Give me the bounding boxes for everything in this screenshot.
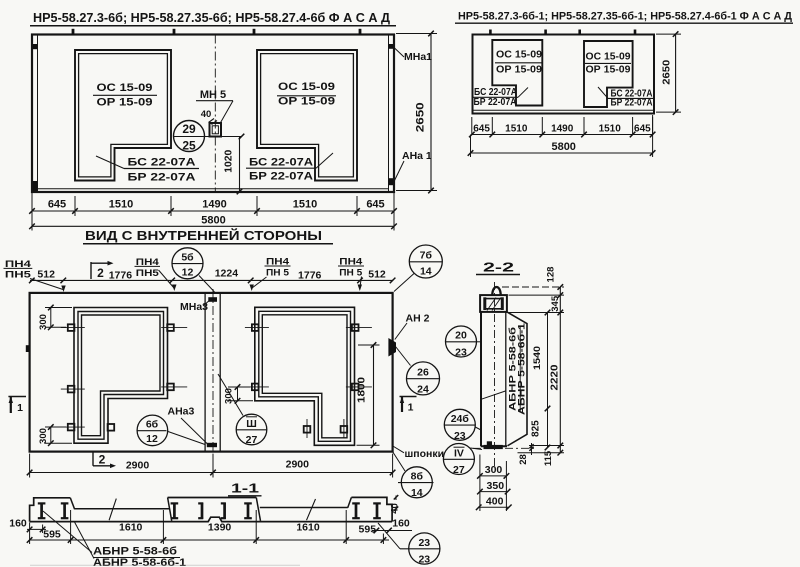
svg-text:400: 400 — [486, 496, 504, 508]
svg-text:1-1: 1-1 — [231, 482, 259, 496]
svg-text:28: 28 — [518, 454, 529, 465]
svg-text:ОР 15-09: ОР 15-09 — [496, 65, 542, 76]
svg-text:IV: IV — [454, 447, 464, 459]
svg-text:МН 5: МН 5 — [200, 89, 226, 101]
svg-text:1510: 1510 — [599, 124, 622, 135]
svg-text:2: 2 — [99, 453, 106, 467]
svg-text:2900: 2900 — [286, 459, 310, 471]
svg-text:2650: 2650 — [661, 60, 673, 85]
svg-text:1510: 1510 — [293, 199, 317, 211]
svg-text:512: 512 — [37, 269, 55, 281]
svg-text:1390: 1390 — [208, 522, 232, 534]
svg-text:300: 300 — [38, 314, 49, 330]
svg-text:14: 14 — [411, 487, 423, 499]
svg-text:2: 2 — [97, 266, 104, 280]
svg-text:БС 22-07А: БС 22-07А — [128, 157, 196, 169]
svg-text:5б: 5б — [181, 252, 194, 264]
svg-text:ОС 15-09: ОС 15-09 — [278, 81, 335, 93]
svg-text:БР 22-07А: БР 22-07А — [128, 172, 196, 184]
svg-text:АБНР 5-58-6б: АБНР 5-58-6б — [93, 546, 177, 558]
svg-text:1776: 1776 — [109, 270, 133, 282]
svg-text:23: 23 — [454, 430, 466, 442]
svg-text:300: 300 — [38, 428, 49, 444]
svg-text:27: 27 — [453, 464, 465, 476]
svg-text:128: 128 — [546, 267, 557, 283]
svg-text:1020: 1020 — [223, 150, 235, 173]
svg-text:ПН 5: ПН 5 — [339, 267, 363, 278]
svg-text:6б: 6б — [146, 419, 159, 431]
svg-text:1540: 1540 — [532, 346, 542, 370]
svg-text:595: 595 — [43, 529, 61, 541]
svg-text:645: 645 — [473, 124, 490, 135]
svg-text:ОР 15-09: ОР 15-09 — [278, 96, 335, 108]
svg-text:2220: 2220 — [549, 364, 561, 390]
svg-text:29: 29 — [182, 122, 196, 136]
svg-text:НР5-58.27.3-6б; НР5-58.27.35-6: НР5-58.27.3-6б; НР5-58.27.35-6б; НР5-58.… — [33, 10, 390, 25]
svg-text:25: 25 — [182, 139, 196, 153]
svg-text:ОС 15-09: ОС 15-09 — [586, 52, 631, 63]
svg-text:АБНР 5-58-6б-1: АБНР 5-58-6б-1 — [517, 323, 527, 415]
svg-text:ОР 15-09: ОР 15-09 — [586, 65, 631, 76]
svg-text:1800: 1800 — [356, 377, 368, 403]
svg-text:1776: 1776 — [298, 270, 322, 282]
svg-text:12: 12 — [182, 267, 194, 279]
svg-text:1: 1 — [408, 402, 414, 414]
svg-text:5800: 5800 — [201, 215, 225, 227]
svg-text:БР 22-07А: БР 22-07А — [611, 98, 653, 109]
svg-text:345: 345 — [550, 295, 561, 312]
svg-text:645: 645 — [366, 199, 384, 211]
svg-text:ОС 15-09: ОС 15-09 — [97, 82, 153, 94]
svg-text:2650: 2650 — [415, 102, 427, 132]
svg-text:2-2: 2-2 — [483, 260, 514, 275]
svg-text:27: 27 — [246, 434, 258, 446]
svg-text:Ш: Ш — [246, 418, 257, 430]
svg-text:БР 22-07А: БР 22-07А — [474, 97, 517, 108]
svg-text:БР 22-07А: БР 22-07А — [249, 171, 313, 183]
svg-text:1510: 1510 — [109, 199, 133, 211]
svg-text:645: 645 — [48, 199, 66, 211]
svg-text:24: 24 — [417, 384, 429, 396]
svg-text:1510: 1510 — [505, 124, 528, 135]
svg-text:ПН5: ПН5 — [136, 268, 160, 279]
svg-text:2900: 2900 — [126, 460, 150, 472]
svg-text:14: 14 — [420, 266, 432, 278]
svg-text:ПН 5: ПН 5 — [266, 267, 290, 278]
svg-text:23: 23 — [418, 554, 430, 566]
svg-text:ОР 15-09: ОР 15-09 — [97, 97, 153, 109]
svg-text:350: 350 — [487, 480, 505, 492]
svg-text:23: 23 — [418, 537, 430, 549]
svg-text:1610: 1610 — [296, 522, 320, 534]
svg-text:26: 26 — [417, 367, 429, 379]
svg-text:БС 22-07А: БС 22-07А — [249, 157, 313, 169]
svg-text:1: 1 — [17, 402, 23, 414]
svg-text:1490: 1490 — [551, 124, 574, 135]
svg-text:ПН5: ПН5 — [5, 270, 32, 281]
svg-text:825: 825 — [531, 420, 542, 437]
svg-text:8б: 8б — [411, 471, 424, 483]
svg-text:24б: 24б — [451, 413, 470, 425]
svg-text:НР5-58.27.3-6б-1; НР5-58.27.35: НР5-58.27.3-6б-1; НР5-58.27.35-6б-1; НР5… — [458, 11, 792, 23]
svg-text:АНа3: АНа3 — [168, 406, 195, 418]
svg-text:АН 2: АН 2 — [406, 313, 430, 325]
svg-text:40: 40 — [390, 503, 401, 514]
svg-text:300: 300 — [485, 464, 503, 476]
svg-text:7б: 7б — [420, 250, 433, 262]
svg-text:115: 115 — [543, 450, 554, 466]
svg-text:1224: 1224 — [215, 268, 239, 280]
svg-text:20: 20 — [455, 330, 467, 342]
svg-text:40: 40 — [201, 109, 212, 120]
svg-text:МНа3: МНа3 — [180, 301, 208, 313]
svg-text:1490: 1490 — [202, 199, 226, 211]
svg-text:300: 300 — [224, 388, 235, 404]
svg-text:ВИД С ВНУТРЕННЕЙ СТОРОНЫ: ВИД С ВНУТРЕННЕЙ СТОРОНЫ — [85, 228, 322, 243]
svg-text:шпонки: шпонки — [405, 448, 445, 460]
svg-text:АНа 1: АНа 1 — [402, 150, 432, 162]
svg-text:23: 23 — [455, 347, 467, 359]
svg-text:595: 595 — [359, 524, 377, 536]
svg-text:160: 160 — [9, 518, 27, 530]
svg-text:12: 12 — [146, 433, 158, 445]
svg-text:ОС 15-09: ОС 15-09 — [496, 50, 542, 61]
svg-text:512: 512 — [368, 269, 386, 281]
svg-text:МНа1: МНа1 — [404, 51, 432, 63]
svg-text:1610: 1610 — [119, 522, 143, 534]
svg-text:160: 160 — [392, 518, 410, 530]
svg-text:645: 645 — [634, 124, 651, 135]
svg-text:5800: 5800 — [551, 141, 575, 153]
